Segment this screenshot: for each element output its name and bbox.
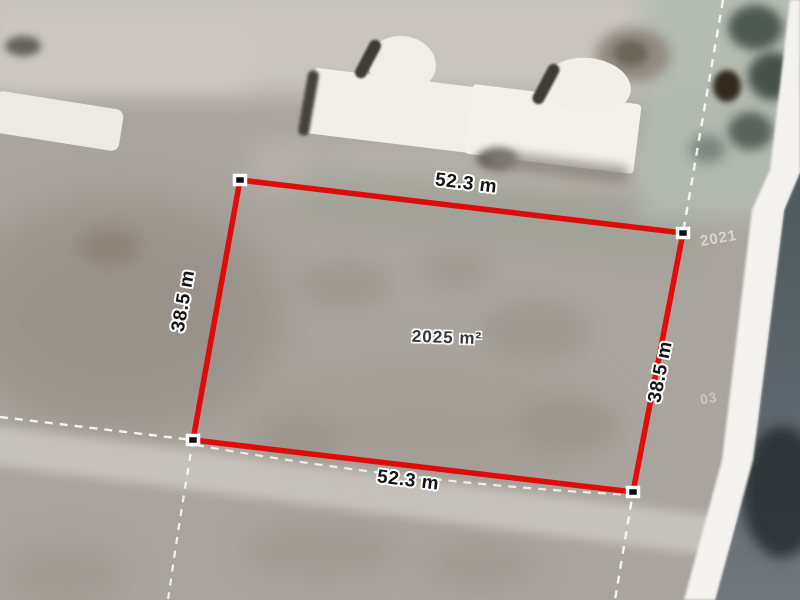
corner-marker-nw [235, 176, 246, 185]
cadastral-line-vertical [168, 440, 193, 600]
corner-marker-ne [678, 229, 689, 238]
cadastral-line-south-west [0, 417, 193, 440]
watermark-mark: 03 [699, 389, 719, 408]
boundary-overlay [0, 0, 800, 600]
satellite-photo: 52.3 m 52.3 m 38.5 m 38.5 m 2025 m² 2021… [0, 0, 800, 600]
corner-marker-sw [188, 436, 199, 445]
corner-marker-se [628, 488, 639, 497]
